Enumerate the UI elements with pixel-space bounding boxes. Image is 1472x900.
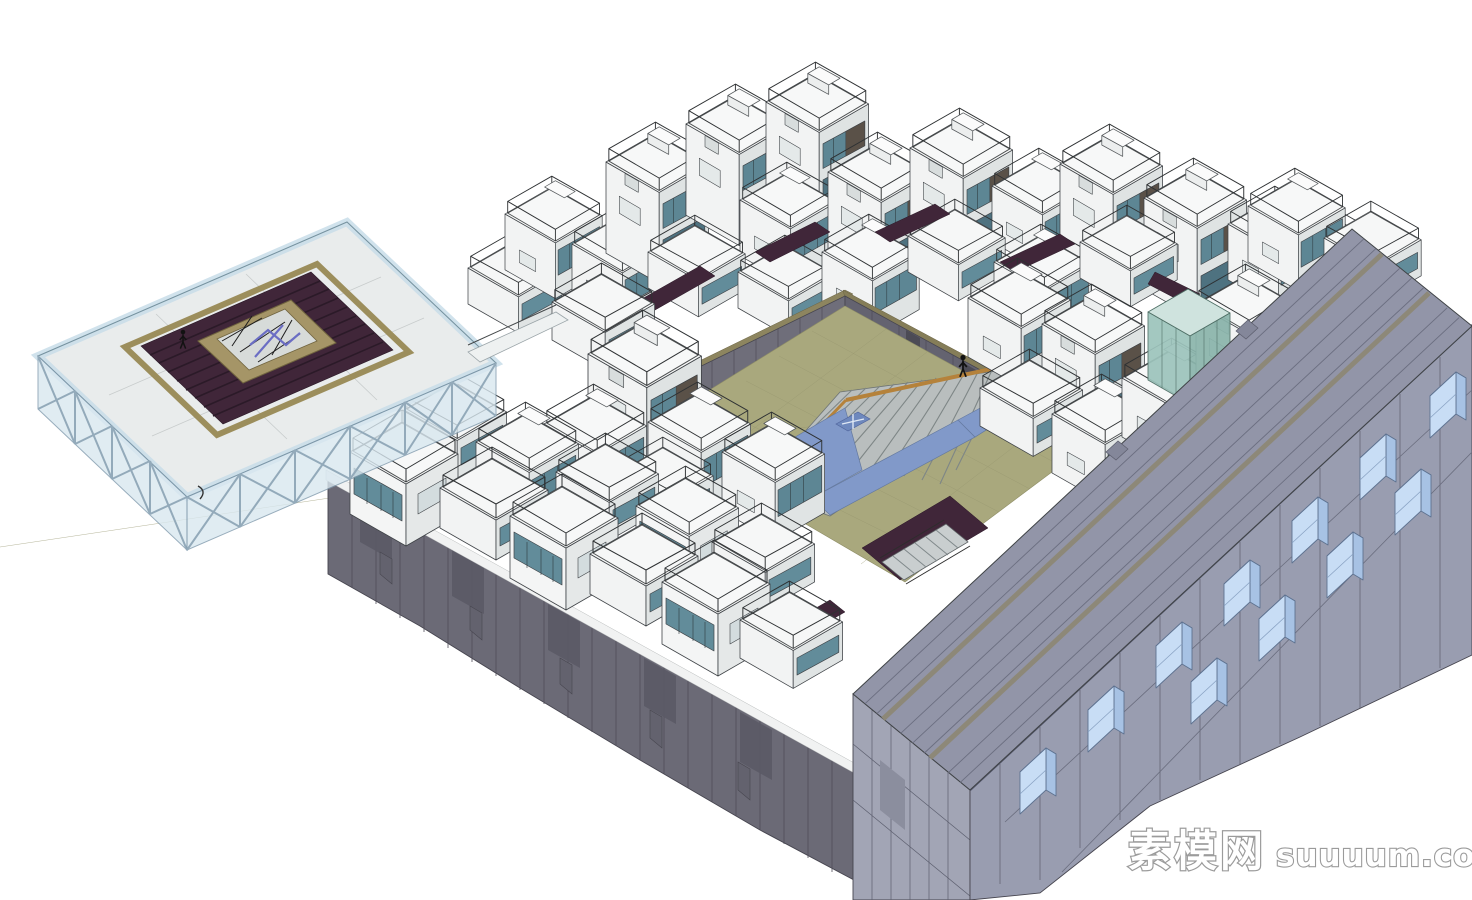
watermark-brand: 素模网	[1128, 827, 1266, 877]
watermark: 素模网 suuuum.com	[1128, 827, 1472, 877]
render-canvas: 素模网 suuuum.com	[0, 0, 1472, 900]
watermark-domain: suuuum.com	[1276, 838, 1472, 874]
